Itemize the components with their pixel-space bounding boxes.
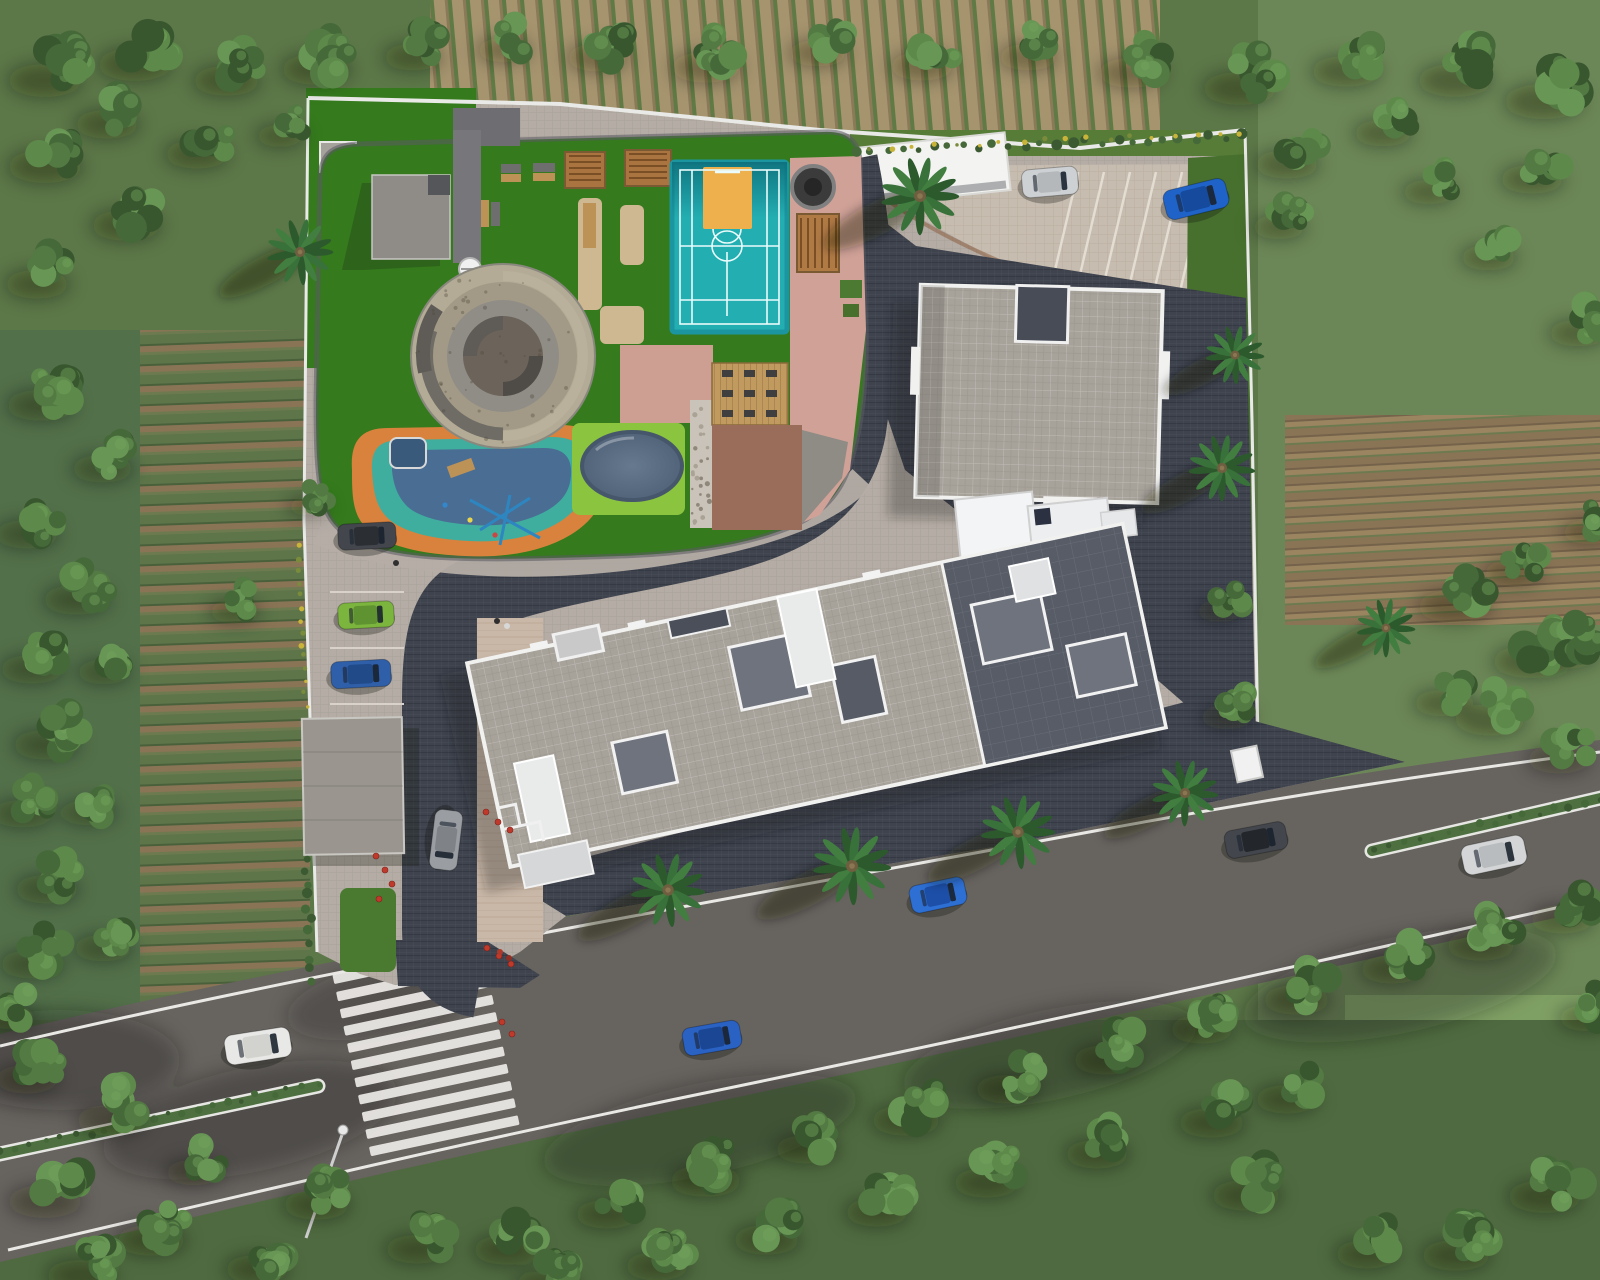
patio-planter-1 xyxy=(840,280,862,298)
amenity-podium xyxy=(316,108,866,559)
left-farm-field xyxy=(130,330,310,1020)
roof-terrace-3 xyxy=(612,731,678,794)
pergola-2 xyxy=(625,150,671,186)
lawn-patch xyxy=(340,888,396,972)
pergola-1 xyxy=(565,152,605,188)
tree-cluster xyxy=(22,630,70,676)
tree-cluster xyxy=(858,1172,918,1216)
balcony-tab-west xyxy=(910,347,920,395)
splash-pool xyxy=(572,423,685,515)
basketball-key xyxy=(703,167,752,229)
roof-lightwell xyxy=(1015,285,1068,342)
brown-paver-patio xyxy=(712,425,802,530)
tree-cluster xyxy=(1582,499,1600,542)
patio-planter-2 xyxy=(843,304,859,317)
roof-terrace-4 xyxy=(971,591,1052,664)
entry-booth xyxy=(1231,746,1263,783)
fire-pit-lounge xyxy=(792,166,834,208)
multi-sport-court xyxy=(672,162,787,332)
tower-a xyxy=(907,283,1172,508)
site-plan-rendering: Residential complex – aerial site plan 3… xyxy=(0,0,1600,1280)
spiral-mound-garden xyxy=(411,264,595,448)
carport-canopy xyxy=(302,717,419,866)
roof-skylight-3 xyxy=(1009,558,1056,602)
outdoor-gym-deck xyxy=(712,363,788,425)
aerial-site-plan: Residential complex – aerial site plan 3… xyxy=(0,0,1600,1280)
roof-terrace-5 xyxy=(1067,634,1137,697)
trampoline xyxy=(390,438,426,468)
